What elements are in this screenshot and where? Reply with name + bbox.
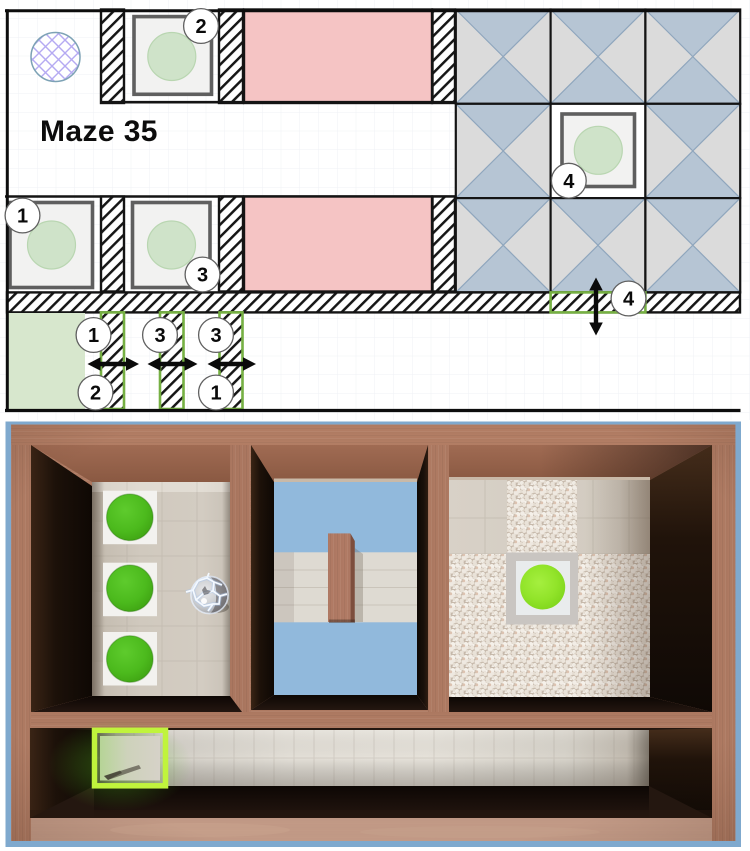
- svg-text:Maze 35: Maze 35: [40, 115, 158, 148]
- svg-text:2: 2: [195, 16, 206, 38]
- svg-text:1: 1: [88, 325, 99, 347]
- svg-text:4: 4: [563, 171, 575, 193]
- svg-text:4: 4: [623, 289, 635, 311]
- svg-text:1: 1: [210, 383, 221, 405]
- svg-text:1: 1: [17, 206, 28, 228]
- svg-text:2: 2: [90, 383, 101, 405]
- svg-text:3: 3: [154, 325, 165, 347]
- svg-text:3: 3: [210, 325, 221, 347]
- svg-text:3: 3: [197, 265, 208, 287]
